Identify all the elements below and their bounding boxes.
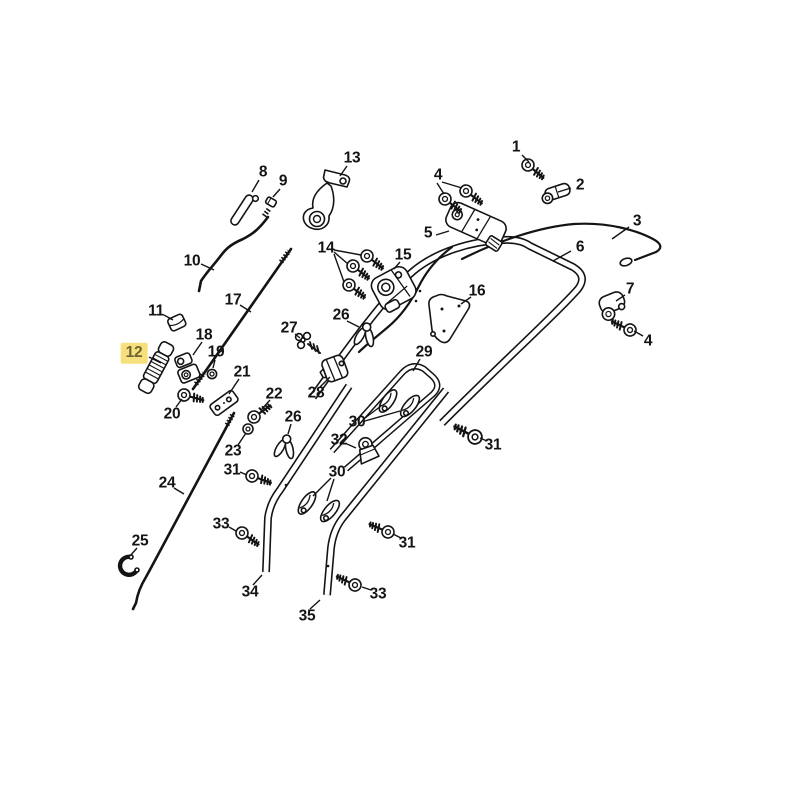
callout-6[interactable]: 6 xyxy=(576,239,584,255)
leader-line xyxy=(193,342,202,355)
callout-16[interactable]: 16 xyxy=(469,283,486,299)
parts-diagram-art xyxy=(0,0,800,800)
callout-35[interactable]: 35 xyxy=(299,608,316,624)
callout-1[interactable]: 1 xyxy=(512,139,520,155)
callout-25[interactable]: 25 xyxy=(132,533,149,549)
callout-33[interactable]: 33 xyxy=(370,586,387,602)
callout-33[interactable]: 33 xyxy=(213,516,230,532)
callout-20[interactable]: 20 xyxy=(164,406,181,422)
leader-line xyxy=(612,227,629,239)
leader-line xyxy=(313,478,331,496)
callout-29[interactable]: 29 xyxy=(416,344,433,360)
leader-line xyxy=(347,444,356,448)
leader-line xyxy=(288,424,291,434)
leader-line xyxy=(327,479,334,501)
part-31-bolt xyxy=(451,420,484,446)
callout-26[interactable]: 26 xyxy=(285,409,302,425)
part-31-bolt xyxy=(244,468,273,488)
part-18-clamp xyxy=(172,351,201,384)
part-19-washer xyxy=(207,369,216,378)
callout-13[interactable]: 13 xyxy=(344,150,361,166)
callout-24[interactable]: 24 xyxy=(159,475,176,491)
callout-34[interactable]: 34 xyxy=(242,584,259,600)
part-33-screw xyxy=(334,571,363,593)
callout-23[interactable]: 23 xyxy=(225,443,242,459)
callout-7[interactable]: 7 xyxy=(626,281,634,297)
part-27-wing-bolt xyxy=(296,333,320,353)
callout-31[interactable]: 31 xyxy=(485,437,502,453)
leader-lines xyxy=(130,155,643,609)
part-20-screw xyxy=(177,388,205,406)
part-2-cable-end-fitting xyxy=(540,182,572,205)
callout-28[interactable]: 28 xyxy=(308,385,325,401)
leader-line xyxy=(437,183,444,194)
callout-4[interactable]: 4 xyxy=(644,333,652,349)
leader-line xyxy=(273,189,280,197)
part-13-lever-bracket xyxy=(303,170,349,229)
callout-5[interactable]: 5 xyxy=(424,225,432,241)
part-33-screw xyxy=(234,525,262,550)
callout-3[interactable]: 3 xyxy=(633,213,641,229)
callout-12-highlighted[interactable]: 12 xyxy=(121,343,148,364)
part-23-nut xyxy=(243,424,253,434)
callout-2[interactable]: 2 xyxy=(576,177,584,193)
callout-26[interactable]: 26 xyxy=(333,307,350,323)
callout-8[interactable]: 8 xyxy=(259,164,267,180)
part-9-bushing xyxy=(265,196,277,207)
callout-31[interactable]: 31 xyxy=(224,462,241,478)
part-1-screw xyxy=(520,157,548,183)
part-26-cable-clip-lower xyxy=(272,433,299,461)
part-8-spacer-tube xyxy=(229,191,259,228)
part-35-lower-handle-right xyxy=(327,390,446,595)
part-22-screw xyxy=(246,401,274,426)
callout-27[interactable]: 27 xyxy=(281,320,298,336)
callout-30[interactable]: 30 xyxy=(349,414,366,430)
callout-18[interactable]: 18 xyxy=(196,327,213,343)
leader-line xyxy=(442,182,462,188)
parts-diagram-page: 1234567489101112131415161718192021222324… xyxy=(0,0,800,800)
leader-line xyxy=(334,250,361,255)
callout-15[interactable]: 15 xyxy=(395,247,412,263)
callout-31[interactable]: 31 xyxy=(399,535,416,551)
callout-30[interactable]: 30 xyxy=(329,464,346,480)
callout-9[interactable]: 9 xyxy=(279,173,287,189)
leader-line xyxy=(229,527,236,531)
leader-line xyxy=(252,180,259,192)
part-4-screw xyxy=(609,316,638,338)
part-11-cap xyxy=(167,313,187,332)
callout-21[interactable]: 21 xyxy=(234,364,251,380)
callout-11[interactable]: 11 xyxy=(148,303,164,319)
callout-32[interactable]: 32 xyxy=(331,432,348,448)
callout-22[interactable]: 22 xyxy=(266,386,283,402)
callout-17[interactable]: 17 xyxy=(225,292,242,308)
part-31-bolt xyxy=(367,519,396,540)
callout-10[interactable]: 10 xyxy=(184,253,201,269)
part-14-screw xyxy=(341,277,369,302)
callout-14[interactable]: 14 xyxy=(318,240,335,256)
leader-line xyxy=(334,254,344,282)
callout-4[interactable]: 4 xyxy=(434,167,442,183)
part-24-rod xyxy=(133,413,234,609)
part-25-c-clip xyxy=(120,555,139,575)
callout-19[interactable]: 19 xyxy=(208,344,225,360)
leader-line xyxy=(436,231,449,235)
